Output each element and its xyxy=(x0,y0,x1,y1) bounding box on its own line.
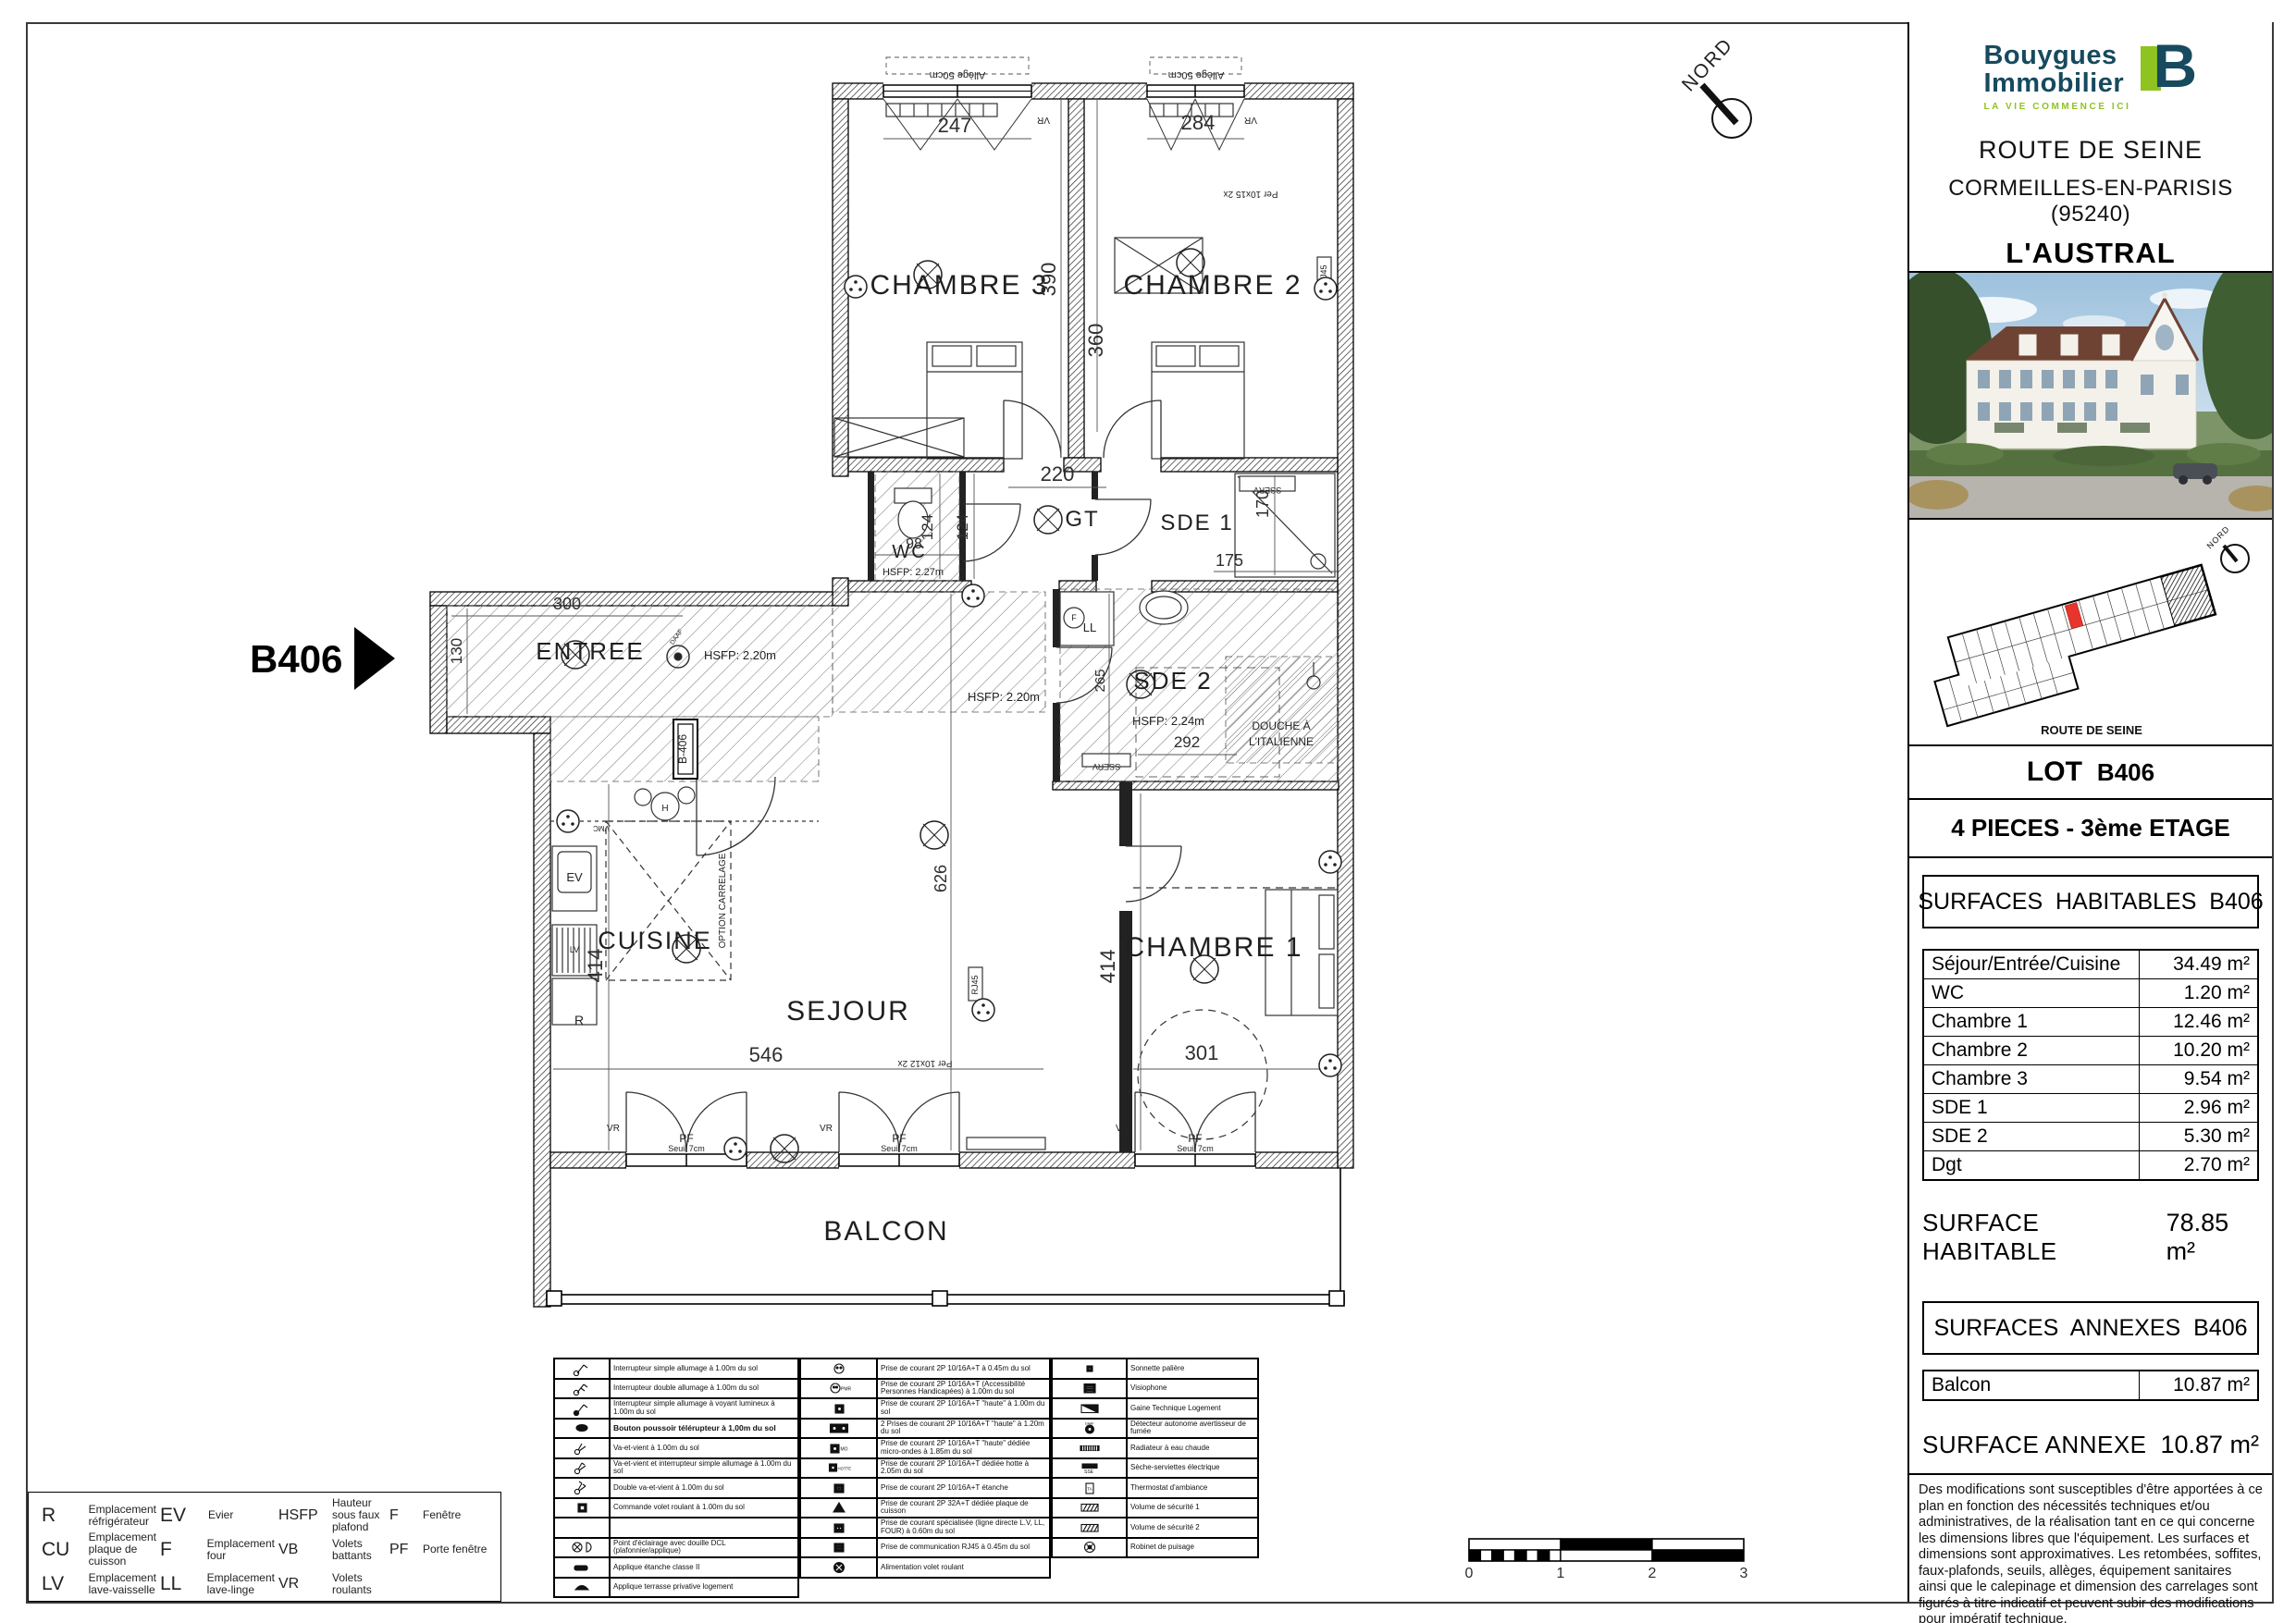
abbr-value: Emplacement four xyxy=(207,1538,278,1562)
alim-volet-icon xyxy=(800,1557,877,1578)
legend-label: Prise de communication RJ45 à 0.45m du s… xyxy=(877,1538,1050,1558)
surface-room-area: 9.54 m² xyxy=(2139,1065,2257,1093)
surface-row: Chambre 39.54 m² xyxy=(1924,1064,2257,1093)
dim-label: 265 xyxy=(1092,669,1108,692)
surface-row: Chambre 112.46 m² xyxy=(1924,1007,2257,1036)
surface-room-name: SDE 2 xyxy=(1924,1123,2139,1150)
legend-label: Va-et-vient et interrupteur simple allum… xyxy=(610,1458,798,1479)
scale-bar xyxy=(1469,1539,1744,1561)
sm-label: B-406 xyxy=(676,734,689,764)
sm-label: Seuil 7cm xyxy=(1177,1144,1214,1153)
sm-label: Allège 50cm xyxy=(930,69,986,80)
abbr-value: Porte fenêtre xyxy=(423,1543,500,1555)
va-et-vient-icon xyxy=(554,1438,610,1458)
legend-label xyxy=(610,1518,798,1538)
legend-label: Radiateur à eau chaude xyxy=(1127,1438,1258,1458)
legend-label: Robinet de puisage xyxy=(1127,1538,1258,1558)
dim-label: 292 xyxy=(1174,733,1200,751)
room-label: BALCON xyxy=(823,1216,948,1247)
legend-label: Commande volet roulant à 1.00m du sol xyxy=(610,1498,798,1518)
prise-haute-2-icon xyxy=(800,1419,877,1439)
legend-label: Interrupteur double allumage à 1.00m du … xyxy=(610,1379,798,1399)
legend-label: Interrupteur simple allumage à 1.00m du … xyxy=(610,1359,798,1379)
legend-label: Gaine Technique Logement xyxy=(1127,1398,1258,1419)
dim-label: 175 xyxy=(1216,551,1243,570)
surface-row: WC1.20 m² xyxy=(1924,978,2257,1007)
unit-b406-marker xyxy=(354,627,395,690)
seche-serviettes-icon: SSE xyxy=(1052,1458,1127,1479)
abbr-row: FFenêtre xyxy=(389,1498,500,1532)
abbr-row: CUEmplacement plaque de cuisson xyxy=(42,1532,160,1567)
prise-pmr-icon: PMR xyxy=(800,1379,877,1399)
legend-group: Prise de courant 2P 10/16A+T à 0.45m du … xyxy=(799,1358,1051,1579)
sm-label: LV xyxy=(570,945,579,954)
sm-label: VR xyxy=(1037,115,1050,125)
legend-label: Visiophone xyxy=(1127,1379,1258,1399)
power-socket-icon xyxy=(845,276,867,298)
volume-2-icon xyxy=(1052,1518,1127,1538)
abbr-key: VB xyxy=(278,1542,332,1558)
surface-room-area: 10.87 m² xyxy=(2139,1371,2257,1399)
brand-logo: Bouygues Immobilier LA VIE COMMENCE ICI … xyxy=(1909,43,2272,112)
abbr-value: Emplacement lave-linge xyxy=(207,1572,278,1596)
surface-habitable-value: 78.85 m² xyxy=(2166,1209,2259,1266)
abbr-value: Emplacement plaque de cuisson xyxy=(89,1531,160,1568)
abbr-row: HSFPHauteur sous faux plafond xyxy=(278,1498,389,1532)
sm-label: DOUCHE À xyxy=(1252,719,1310,732)
abbr-key: EV xyxy=(160,1505,208,1527)
dim-label: 414 xyxy=(584,949,607,983)
surface-room-area: 34.49 m² xyxy=(2139,951,2257,978)
sm-label: F xyxy=(1071,613,1077,622)
legend-label: Volume de sécurité 2 xyxy=(1127,1518,1258,1538)
room-label: SEJOUR xyxy=(786,996,910,1027)
daaf-icon: DAAF xyxy=(1052,1419,1127,1439)
commande-volet-icon xyxy=(554,1498,610,1518)
sm-label: H xyxy=(661,804,668,814)
prise-specialisee-icon xyxy=(800,1518,877,1538)
abbr-row: FEmplacement four xyxy=(160,1532,278,1567)
sm-label: VR xyxy=(1116,1124,1129,1134)
sm-label: R xyxy=(574,1013,584,1027)
legend-label: 2 Prises de courant 2P 10/16A+T "haute" … xyxy=(877,1419,1050,1439)
light-point-icon xyxy=(920,821,948,849)
dim-label: 626 xyxy=(932,865,950,892)
sm-label: EV xyxy=(566,870,583,884)
legend-label: Va-et-vient à 1.00m du sol xyxy=(610,1438,798,1458)
abbr-value: Evier xyxy=(208,1509,278,1521)
surface-row: Balcon10.87 m² xyxy=(1924,1371,2257,1399)
none-icon xyxy=(554,1518,610,1538)
prise-mo-icon: MO xyxy=(800,1438,877,1458)
legend-label: Applique étanche classe II xyxy=(610,1557,798,1578)
double-va-et-vient-icon xyxy=(554,1478,610,1498)
sm-label: PF xyxy=(1188,1132,1202,1145)
abbr-row: EVEvier xyxy=(160,1498,278,1532)
project-street: ROUTE DE SEINE xyxy=(1909,136,2272,165)
power-socket-icon xyxy=(1319,1054,1341,1076)
scale-label: 2 xyxy=(1648,1566,1657,1581)
legend-label: Prise de courant 2P 10/16A+T à 0.45m du … xyxy=(877,1359,1050,1379)
legend-label: Prise de courant spécialisée (ligne dire… xyxy=(877,1518,1050,1538)
scale-label: 1 xyxy=(1557,1566,1565,1581)
site-plan-caption: ROUTE DE SEINE xyxy=(2041,723,2142,737)
abbr-key: F xyxy=(160,1539,207,1561)
surface-room-name: Séjour/Entrée/Cuisine xyxy=(1924,951,2139,978)
thermostat-icon: TA xyxy=(1052,1478,1127,1498)
surfaces-habitables-title: SURFACES HABITABLES B406 xyxy=(1922,875,2259,928)
surface-room-name: Chambre 3 xyxy=(1924,1065,2139,1093)
legend-label: Détecteur autonome avertisseur de fumée xyxy=(1127,1419,1258,1439)
scale-label: 0 xyxy=(1465,1566,1474,1581)
svg-text:DAAF: DAAF xyxy=(1085,1422,1094,1426)
abbreviations-legend: REmplacement réfrigérateurCUEmplacement … xyxy=(28,1492,501,1602)
site-north-compass-icon: NORD xyxy=(2205,524,2249,572)
surface-habitable-total: SURFACE HABITABLE 78.85 m² xyxy=(1922,1209,2259,1266)
surfaces-habitables-table: Séjour/Entrée/Cuisine34.49 m²WC1.20 m²Ch… xyxy=(1922,949,2259,1181)
surface-annexe-label: SURFACE ANNEXE xyxy=(1922,1431,2147,1459)
dim-label: 546 xyxy=(749,1043,784,1066)
sm-label: VR xyxy=(820,1124,833,1134)
abbr-value: Fenêtre xyxy=(423,1509,500,1521)
surface-room-name: WC xyxy=(1924,979,2139,1007)
prise-haute-icon xyxy=(800,1398,877,1419)
sidebar-header: Bouygues Immobilier LA VIE COMMENCE ICI … xyxy=(1909,22,2272,273)
surface-row: Chambre 210.20 m² xyxy=(1924,1036,2257,1064)
volume-1-icon xyxy=(1052,1498,1127,1518)
surfaces-annexes-table: Balcon10.87 m² xyxy=(1922,1370,2259,1401)
prise-32a-icon xyxy=(800,1498,877,1518)
sm-label: PF xyxy=(892,1132,906,1145)
dim-label: 170 xyxy=(1253,490,1272,518)
sm-label: Seuil 7cm xyxy=(668,1144,705,1153)
legend-label: Bouton poussoir télérupteur à 1,00m du s… xyxy=(610,1419,798,1439)
svg-text:HOTTE: HOTTE xyxy=(837,1467,851,1471)
sm-label: HSFP: 2.20m xyxy=(968,690,1040,704)
surface-room-area: 5.30 m² xyxy=(2139,1123,2257,1150)
surface-room-name: SDE 1 xyxy=(1924,1094,2139,1122)
dim-label: 360 xyxy=(1084,324,1107,358)
abbr-key: CU xyxy=(42,1539,89,1561)
power-socket-icon xyxy=(1315,277,1337,300)
room-label: CHAMBRE 2 xyxy=(1123,270,1302,301)
brand-tagline: LA VIE COMMENCE ICI xyxy=(1983,102,2130,112)
power-socket-icon xyxy=(962,584,984,607)
visiophone-icon xyxy=(1052,1379,1127,1399)
project-city: CORMEILLES-EN-PARISIS (95240) xyxy=(1909,176,2272,227)
surface-room-name: Chambre 2 xyxy=(1924,1037,2139,1064)
dim-label: 284 xyxy=(1181,111,1216,134)
dim-label: 220 xyxy=(1041,462,1075,486)
surface-room-name: Chambre 1 xyxy=(1924,1008,2139,1036)
abbr-row: LLEmplacement lave-linge xyxy=(160,1567,278,1601)
legend-label: Alimentation volet roulant xyxy=(877,1557,1050,1578)
surface-room-area: 1.20 m² xyxy=(2139,979,2257,1007)
gtl-icon xyxy=(1052,1398,1127,1419)
abbr-key: LL xyxy=(160,1573,207,1595)
surface-row: Séjour/Entrée/Cuisine34.49 m² xyxy=(1924,951,2257,978)
legend-label: Prise de courant 2P 10/16A+T étanche xyxy=(877,1478,1050,1498)
dim-label: 390 xyxy=(1037,263,1060,297)
applique-etanche-icon xyxy=(554,1557,610,1578)
sm-label: RJ45 xyxy=(970,975,980,994)
abbr-row: VRVolets roulants xyxy=(278,1567,389,1601)
dim-label: 130 xyxy=(448,638,465,664)
legend-label: Volume de sécurité 1 xyxy=(1127,1498,1258,1518)
power-socket-icon xyxy=(1319,851,1341,873)
legend-label: Thermostat d'ambiance xyxy=(1127,1478,1258,1498)
dim-label: 414 xyxy=(1096,950,1119,984)
abbr-key: F xyxy=(389,1507,423,1524)
legend-label: Prise de courant 2P 10/16A+T "haute" à 1… xyxy=(877,1398,1050,1419)
abbr-row: VBVolets battants xyxy=(278,1532,389,1567)
switch-2-icon xyxy=(554,1379,610,1399)
legend-label: Prise de courant 2P 10/16A+T dédiée hott… xyxy=(877,1458,1050,1479)
switch-voyant-icon xyxy=(554,1398,610,1419)
legend-group: Interrupteur simple allumage à 1.00m du … xyxy=(553,1358,799,1598)
sm-label: OPTION CARRELAGE xyxy=(718,853,728,948)
abbr-key: HSFP xyxy=(278,1507,332,1524)
project-name: L'AUSTRAL xyxy=(1909,237,2272,270)
sm-label: HSFP: 2.24m xyxy=(1132,714,1204,728)
surface-habitable-label: SURFACE HABITABLE xyxy=(1922,1209,2166,1266)
abbr-row: REmplacement réfrigérateur xyxy=(42,1498,160,1532)
surface-room-area: 10.20 m² xyxy=(2139,1037,2257,1064)
unit-arrow-label: B406 xyxy=(250,637,342,681)
point-eclairage-icon xyxy=(554,1538,610,1558)
room-label: ENTREE xyxy=(536,637,644,665)
dim-label: 247 xyxy=(938,114,972,137)
sm-label: SSERV xyxy=(1092,762,1120,771)
abbr-value: Emplacement réfrigérateur xyxy=(89,1504,160,1528)
sm-label: HSFP: 2.20m xyxy=(704,648,776,662)
surface-row: SDE 25.30 m² xyxy=(1924,1122,2257,1150)
switch-1-icon xyxy=(554,1359,610,1379)
site-building-outline xyxy=(1924,565,2225,726)
sm-label: Allège 50cm xyxy=(1168,69,1225,80)
surface-annexe-value: 10.87 m² xyxy=(2160,1431,2259,1459)
power-socket-icon xyxy=(972,999,994,1021)
legend-label: Prise de courant 2P 10/16A+T "haute" déd… xyxy=(877,1438,1050,1458)
abbr-value: Hauteur sous faux plafond xyxy=(332,1497,389,1533)
svg-text:TA: TA xyxy=(1087,1486,1092,1491)
abbr-value: Emplacement lave-vaisselle xyxy=(89,1572,160,1596)
dim-label: 300 xyxy=(553,595,581,613)
legend-label: Prise de courant 2P 32A+T dédiée plaque … xyxy=(877,1498,1050,1518)
prise-rj45-icon xyxy=(800,1538,877,1558)
robinet-icon xyxy=(1052,1538,1127,1558)
legend-label: Applique terrasse privative logement xyxy=(610,1578,798,1598)
legend-label: Sèche-serviettes électrique xyxy=(1127,1458,1258,1479)
site-plan: NORD ROUTE DE SEINE xyxy=(1909,518,2272,746)
dim-label: 98 xyxy=(906,536,922,552)
north-label: NORD xyxy=(1678,34,1737,96)
abbr-key: PF xyxy=(389,1542,423,1558)
surface-room-area: 2.96 m² xyxy=(2139,1094,2257,1122)
surface-room-name: Balcon xyxy=(1924,1371,2139,1399)
sm-label: Per 10x15 2x xyxy=(1224,189,1278,199)
abbr-value: Volets roulants xyxy=(332,1572,389,1596)
title-block-sidebar: Bouygues Immobilier LA VIE COMMENCE ICI … xyxy=(1907,22,2272,1602)
room-label: SDE 1 xyxy=(1160,510,1233,535)
lot-row: LOT B406 xyxy=(1909,746,2272,800)
legend-label: Prise de courant 2P 10/16A+T (Accessibil… xyxy=(877,1379,1050,1399)
legend-label: Point d'éclairage avec douille DCL (plaf… xyxy=(610,1538,798,1558)
power-socket-icon xyxy=(724,1137,747,1160)
bouton-poussoir-icon xyxy=(554,1419,610,1439)
sm-label: Per 10x12 2x xyxy=(898,1058,953,1068)
room-label: CHAMBRE 3 xyxy=(870,270,1048,301)
building-photo xyxy=(1909,273,2272,518)
surface-room-area: 2.70 m² xyxy=(2139,1151,2257,1179)
symbol-legend: Interrupteur simple allumage à 1.00m du … xyxy=(553,1358,1259,1598)
sm-label: Seuil 7cm xyxy=(881,1144,918,1153)
abbr-row: LVEmplacement lave-vaisselle xyxy=(42,1567,160,1601)
legend-label: Double va-et-vient à 1.00m du sol xyxy=(610,1478,798,1498)
room-label: GT xyxy=(1065,507,1099,532)
abbr-row: PFPorte fenêtre xyxy=(389,1532,500,1567)
sm-label: VMC xyxy=(593,824,610,832)
surface-room-area: 12.46 m² xyxy=(2139,1008,2257,1036)
legend-label: Interrupteur simple allumage à voyant lu… xyxy=(610,1398,798,1419)
abbr-key: VR xyxy=(278,1576,332,1592)
type-row: 4 PIECES - 3ème ETAGE xyxy=(1909,800,2272,858)
dim-label: 124 xyxy=(954,514,971,540)
prise-hotte-icon: HOTTE xyxy=(800,1458,877,1479)
lot-value: B406 xyxy=(2097,758,2154,787)
va-et-vient-inter-icon xyxy=(554,1458,610,1479)
plan-sheet: CHAMBRE 3CHAMBRE 2SEJOURBALCONCHAMBRE 1C… xyxy=(0,0,2296,1623)
disclaimer-paragraph-1: Des modifications sont susceptibles d'êt… xyxy=(1919,1482,2263,1623)
abbr-value: Volets battants xyxy=(332,1538,389,1562)
power-socket-icon xyxy=(557,810,579,832)
brand-mark-icon: B xyxy=(2141,43,2198,102)
light-point-icon xyxy=(1034,506,1062,534)
surface-row: SDE 12.96 m² xyxy=(1924,1093,2257,1122)
legend-group: Sonnette palièreVisiophoneGaine Techniqu… xyxy=(1051,1358,1259,1558)
surface-row: Dgt2.70 m² xyxy=(1924,1150,2257,1179)
prise-045-icon xyxy=(800,1359,877,1379)
prise-etanche-icon xyxy=(800,1478,877,1498)
applique-terrasse-icon xyxy=(554,1578,610,1598)
disclaimer: Des modifications sont susceptibles d'êt… xyxy=(1909,1473,2272,1623)
scale-label: 3 xyxy=(1740,1566,1748,1581)
sm-label: PF xyxy=(679,1132,693,1145)
radiateur-icon xyxy=(1052,1438,1127,1458)
svg-text:SSE: SSE xyxy=(1084,1469,1094,1475)
dim-label: 301 xyxy=(1185,1041,1219,1064)
abbr-key: LV xyxy=(42,1573,89,1595)
surfaces-annexes-title: SURFACES ANNEXES B406 xyxy=(1922,1301,2259,1355)
sonnette-icon xyxy=(1052,1359,1127,1379)
sm-label: HSFP: 2.27m xyxy=(883,567,944,578)
north-compass-icon xyxy=(1702,85,1751,138)
surface-annexe-total: SURFACE ANNEXE 10.87 m² xyxy=(1922,1431,2259,1459)
brand-name-line2: Immobilier xyxy=(1983,70,2130,98)
svg-text:PMR: PMR xyxy=(841,1387,851,1393)
sm-label: VR xyxy=(1244,115,1257,125)
abbr-key: R xyxy=(42,1505,89,1527)
surface-room-name: Dgt xyxy=(1924,1151,2139,1179)
sm-label: LL xyxy=(1083,621,1096,634)
sm-label: L'ITALIENNE xyxy=(1249,735,1314,748)
lot-label: LOT xyxy=(2027,756,2082,788)
sm-label: VR xyxy=(607,1124,620,1134)
legend-label: Sonnette palière xyxy=(1127,1359,1258,1379)
svg-text:MO: MO xyxy=(840,1446,847,1452)
brand-name-line1: Bouygues xyxy=(1983,43,2130,70)
